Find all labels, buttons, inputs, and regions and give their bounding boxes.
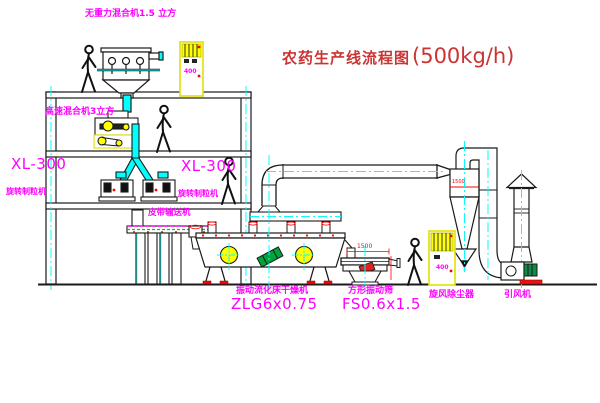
granulator-mid-model: XL-300	[181, 159, 236, 174]
cabinet-right-text: 400	[436, 265, 449, 271]
belt-conveyor-label: 皮带输送机	[148, 209, 191, 218]
cyclone-name-label: 旋风除尘器	[429, 291, 474, 300]
cyclone-machine	[450, 141, 505, 280]
granulator-left-model: XL-300	[11, 157, 66, 172]
person-roof	[82, 46, 96, 92]
cyclone-dimension-label: 1500	[452, 180, 465, 185]
cabinet-top-text: 400	[184, 69, 197, 75]
speed-mixer-label: 高速混合机3立方	[45, 108, 114, 117]
screen-dimension-label: 1500	[357, 244, 372, 250]
induced-draft-fan	[501, 262, 542, 284]
granulator-left-name: 旋转制粒机	[6, 188, 46, 196]
process-flow-diagram: 农药生产线流程图 (500kg/h) 无重力混合机1.5 立方 高速混合机3立方…	[0, 0, 600, 403]
screen-model-label: FS0.6x1.5	[342, 297, 421, 312]
floor2-mixer	[94, 111, 153, 180]
granulator-discharge-chute	[132, 210, 143, 227]
title-capacity: (500kg/h)	[412, 46, 514, 67]
gravity-mixer-label: 无重力混合机1.5 立方	[85, 10, 176, 19]
gravity-mixer	[97, 48, 163, 112]
title-text: 农药生产线流程图	[282, 51, 410, 66]
page-title: 农药生产线流程图 (500kg/h)	[282, 46, 514, 67]
granulator-mid-name: 旋转制粒机	[178, 190, 218, 198]
person-floor2	[157, 106, 171, 152]
control-cabinet-right	[429, 231, 455, 285]
person-ground	[408, 239, 422, 285]
exhaust-duct	[262, 164, 450, 206]
dryer-model-label: ZLG6x0.75	[231, 297, 318, 312]
fan-name-label: 引风机	[504, 291, 531, 300]
